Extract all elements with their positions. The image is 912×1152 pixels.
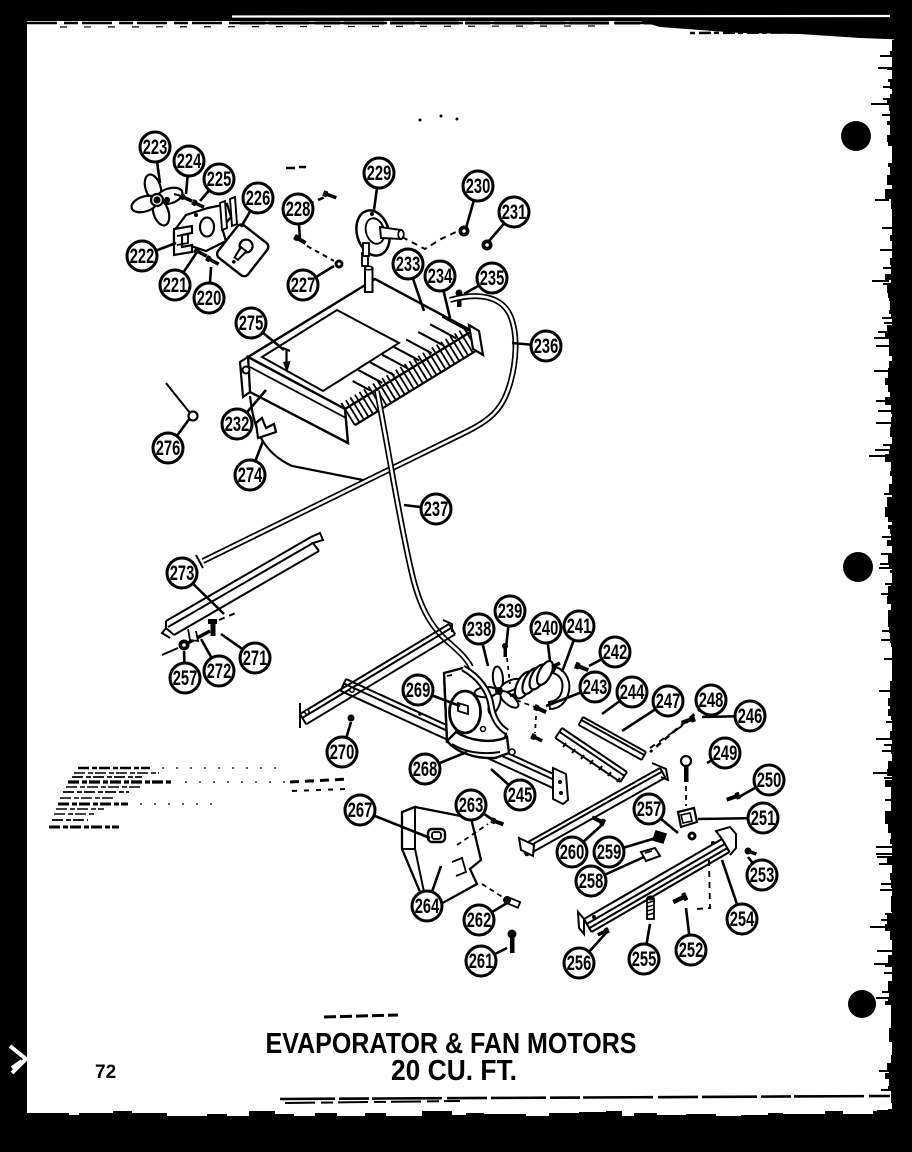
svg-text:238: 238 [467,618,492,641]
svg-text:235: 235 [480,267,505,290]
svg-text:244: 244 [620,681,645,704]
svg-text:271: 271 [243,647,268,670]
svg-text:229: 229 [367,162,392,185]
svg-text:239: 239 [498,600,523,623]
svg-text:270: 270 [330,741,355,764]
svg-text:20 CU. FT.: 20 CU. FT. [391,1055,517,1087]
svg-text:260: 260 [560,841,585,864]
svg-text:275: 275 [239,312,264,335]
svg-text:255: 255 [632,948,657,971]
svg-text:241: 241 [567,615,592,638]
svg-text:276: 276 [156,437,181,460]
svg-text:221: 221 [163,274,188,297]
svg-text:253: 253 [750,864,775,887]
svg-text:254: 254 [730,908,755,931]
svg-text:233: 233 [396,253,421,276]
svg-text:257: 257 [637,798,662,821]
svg-text:252: 252 [679,939,704,962]
svg-text:242: 242 [603,641,628,664]
svg-text:264: 264 [415,895,440,918]
svg-text:232: 232 [225,413,250,436]
svg-text:226: 226 [246,187,271,210]
svg-text:251: 251 [751,807,776,830]
svg-text:259: 259 [597,841,622,864]
svg-text:246: 246 [738,705,763,728]
svg-text:227: 227 [291,274,316,297]
svg-text:267: 267 [348,799,373,822]
svg-text:237: 237 [424,498,449,521]
svg-text:224: 224 [177,150,202,173]
svg-text:72: 72 [95,1062,116,1083]
svg-text:245: 245 [508,784,533,807]
svg-text:250: 250 [757,769,782,792]
svg-text:225: 225 [207,168,232,191]
svg-text:228: 228 [286,198,311,221]
svg-text:249: 249 [713,742,738,765]
svg-text:256: 256 [567,952,592,975]
svg-text:231: 231 [502,201,527,224]
svg-text:243: 243 [583,676,608,699]
svg-text:240: 240 [534,617,559,640]
svg-text:220: 220 [197,287,222,310]
svg-text:269: 269 [406,679,431,702]
svg-text:268: 268 [413,758,438,781]
svg-text:273: 273 [170,562,195,585]
svg-text:223: 223 [143,136,168,159]
svg-text:222: 222 [130,245,155,268]
svg-text:258: 258 [579,870,604,893]
svg-text:262: 262 [467,909,492,932]
svg-text:272: 272 [207,660,232,683]
svg-text:261: 261 [469,950,494,973]
svg-text:263: 263 [459,794,484,817]
svg-text:234: 234 [428,265,453,288]
svg-text:257: 257 [173,667,198,690]
svg-text:230: 230 [466,175,491,198]
svg-text:248: 248 [699,689,724,712]
svg-text:236: 236 [534,335,559,358]
svg-text:274: 274 [238,464,263,487]
svg-text:247: 247 [656,690,681,713]
